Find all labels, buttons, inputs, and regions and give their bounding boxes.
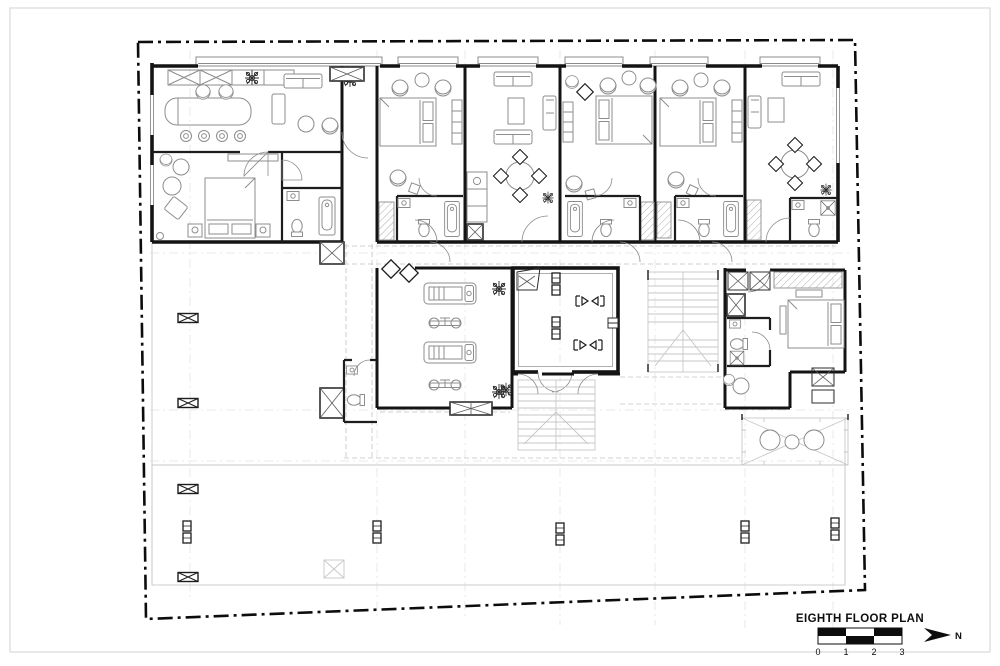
scale-bar: 0 1 2 3 [815,628,904,657]
scale-label-3: 3 [899,647,904,657]
column-marker-icon [178,399,198,408]
column-marker-icon [178,573,198,582]
drawing-sheet: EIGHTH FLOOR PLAN 0 1 2 3 N [0,0,1000,666]
drawing-title: EIGHTH FLOOR PLAN [796,613,924,625]
column-marker-icon [178,314,198,323]
wall-box [608,318,618,328]
column-marker-icon [178,485,198,494]
scale-label-1: 1 [843,647,848,657]
shaft [330,67,364,81]
north-label: N [955,631,962,642]
scale-label-2: 2 [871,647,876,657]
scale-label-0: 0 [815,647,820,657]
floor-plan-drawing: EIGHTH FLOOR PLAN 0 1 2 3 N [0,0,1000,666]
shaft [450,402,492,415]
shaft [727,294,745,316]
terrace-table [785,435,799,449]
